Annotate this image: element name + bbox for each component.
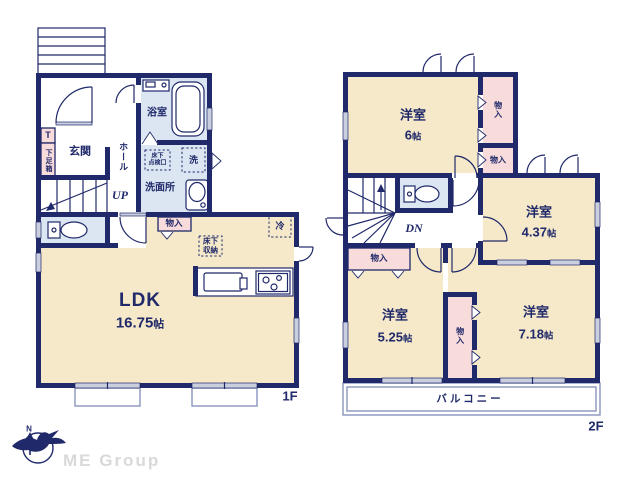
washroom-label: 洗面所 [145, 182, 175, 194]
hall-label: ホール [118, 142, 128, 172]
terrace-right [192, 388, 257, 406]
bedroom718-name: 洋室 [523, 306, 549, 321]
bedroom437-name: 洋室 [526, 206, 552, 221]
underfloor-line2: 収納 [203, 246, 218, 255]
bedroom525-area-unit: 帖 [403, 334, 412, 344]
bath-label: 浴室 [147, 107, 167, 119]
ldk-name: LDK [119, 290, 161, 312]
bedroom437-area-unit: 帖 [547, 229, 556, 239]
bathtub-icon [172, 82, 204, 136]
ldk-area: 16.75帖 [116, 314, 164, 331]
compass-north-label: N [26, 424, 32, 433]
stairs-dn-label: DN [405, 222, 422, 236]
toilet-2f-icon [404, 186, 439, 202]
t-box-label: T [45, 130, 51, 140]
floor1-tag: 1F [282, 390, 297, 405]
fridge-label: 冷 [275, 221, 284, 231]
kitchen-counter [196, 268, 293, 296]
bedroom525-area: 5.25帖 [378, 331, 413, 346]
closet-2f-left-label: 物入 [370, 254, 387, 264]
toilet-1f-icon [48, 222, 87, 238]
closet-2f-top-label: 物入 [493, 101, 502, 119]
entrance-label: 玄関 [69, 146, 91, 159]
bedroom718-area: 7.18帖 [519, 328, 554, 343]
bedroom718-area-value: 7.18 [519, 327, 544, 342]
ldk-area-value: 16.75 [116, 314, 154, 331]
brand-logo-text: ME Group [63, 451, 160, 471]
washer-label: 洗 [189, 155, 198, 165]
bath-vanity-icon [143, 80, 169, 91]
floor-hatch-line2: 点検口 [148, 160, 166, 167]
bedroom6-area-unit: 帖 [412, 132, 421, 142]
stairs-1f [41, 180, 107, 212]
closet-2f-mid-label: 物入 [490, 155, 506, 164]
bedroom6-area: 6帖 [405, 129, 422, 144]
floor-hatch-label: 床下 点検口 [148, 154, 166, 167]
closet-1f-label: 物入 [165, 219, 182, 229]
stairs-2f [348, 178, 395, 243]
underfloor-storage-label: 床下 収納 [203, 238, 218, 255]
closet-2f-center-label: 物入 [455, 327, 464, 345]
bedroom6-name: 洋室 [400, 109, 426, 124]
bedroom718-area-unit: 帖 [544, 331, 553, 341]
compass-icon [12, 430, 66, 463]
bedroom437-area: 4.37帖 [522, 226, 557, 241]
ldk-area-unit: 帖 [153, 318, 164, 330]
bedroom437-area-value: 4.37 [522, 225, 547, 240]
stairs-up-label: UP [112, 189, 128, 203]
washbasin-icon [186, 180, 208, 210]
floor2-tag: 2F [588, 420, 603, 435]
entrance-steps [38, 28, 105, 75]
shoe-box-label: 下足箱 [44, 149, 52, 173]
bedroom525-name: 洋室 [382, 309, 408, 324]
terrace-left [75, 388, 140, 406]
bedroom525-area-value: 5.25 [378, 330, 403, 345]
floorplan-page: 玄関 T 下足箱 ホール UP 浴室 洗面所 洗 床下 点検口 物入 床下 収納… [0, 0, 640, 480]
balcony-label: バルコニー [436, 393, 503, 405]
